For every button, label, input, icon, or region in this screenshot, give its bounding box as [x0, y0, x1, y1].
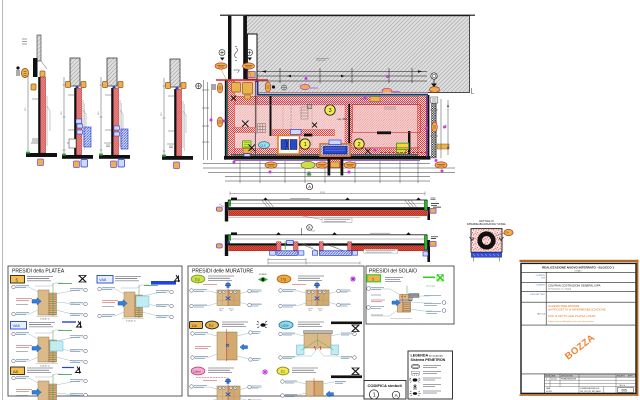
svg-text:LOSA 1: LOSA 1	[575, 270, 583, 273]
svg-text:TLR: TLR	[541, 277, 546, 279]
svg-text:11g: 11g	[195, 277, 200, 281]
svg-text:APPR: APPR	[628, 375, 633, 378]
svg-text:DESCRIZIONE: DESCRIZIONE	[561, 376, 573, 378]
svg-text:mq 459.70: mq 459.70	[337, 117, 352, 121]
svg-text:PRESIDI della PLATEA: PRESIDI della PLATEA	[12, 269, 65, 275]
svg-text:05.2021: 05.2021	[551, 379, 557, 381]
svg-text:IMPERMEABILIZZAZIONE TUNNEL: IMPERMEABILIZZAZIONE TUNNEL	[467, 223, 507, 226]
svg-text:FASI di GETTO della PLATEA e M: FASI di GETTO della PLATEA e MURI	[548, 314, 596, 318]
svg-text:del PROGETTO di IMPERMEABILIZZ: del PROGETTO di IMPERMEABILIZZAZIONE	[548, 308, 606, 312]
svg-text:U11b: U11b	[282, 323, 289, 327]
svg-text:17g: 17g	[281, 277, 287, 281]
svg-text:REDATTO: REDATTO	[617, 375, 626, 378]
svg-text:CODIFICA simboli: CODIFICA simboli	[368, 383, 402, 388]
svg-text:11b: 11b	[192, 324, 198, 328]
svg-text:11b(s): 11b(s)	[193, 369, 201, 373]
svg-text:VA8: VA8	[99, 277, 107, 282]
svg-text:TAVOLA: TAVOLA	[537, 313, 546, 316]
svg-text:05.2021: 05.2021	[546, 391, 552, 393]
svg-text:A8: A8	[13, 369, 19, 374]
svg-text:REALIZZAZIONE NUOVO INTERRATO: REALIZZAZIONE NUOVO INTERRATO - BLOCCO 1	[542, 265, 614, 269]
svg-text:PRIMA EMISSIONE: PRIMA EMISSIONE	[561, 378, 577, 381]
svg-text:Sistema PENETRON: Sistema PENETRON	[411, 358, 446, 362]
svg-text:VA8: VA8	[13, 323, 21, 328]
svg-text:3: 3	[329, 108, 332, 114]
svg-text:PRESIDI delle MURATURE: PRESIDI delle MURATURE	[192, 269, 254, 275]
svg-text:RIPRESA: RIPRESA	[259, 273, 267, 276]
svg-text:rete el.sald.: rete el.sald.	[426, 285, 436, 288]
svg-text:PROGETTISTI: PROGETTISTI	[530, 294, 545, 296]
svg-text:CBL_STR_PN_IMP_BAGN: CBL_STR_PN_IMP_BAGN	[580, 390, 601, 393]
svg-text:Via Nazionale, 12 - Napoli: Via Nazionale, 12 - Napoli	[548, 289, 572, 291]
svg-text:CLS: CLS	[261, 143, 266, 147]
svg-text:COMMESSA NOME FILE: COMMESSA NOME FILE	[580, 387, 600, 390]
svg-text:1: 1	[373, 393, 376, 399]
svg-text:1: 1	[304, 142, 307, 148]
svg-text:11j: 11j	[281, 369, 285, 373]
svg-text:COLFRAN COSTRUZIONI GENERALI S: COLFRAN COSTRUZIONI GENERALI SPA	[548, 283, 601, 287]
svg-text:0: 0	[546, 379, 547, 381]
svg-text:il getto in opera della platea: il getto in opera della platea e dei mur…	[548, 320, 594, 323]
svg-text:2125: 2125	[320, 192, 326, 194]
svg-text:A: A	[308, 184, 311, 189]
svg-text:CLIENTE: CLIENTE	[536, 284, 546, 286]
svg-text:005: 005	[622, 389, 628, 393]
svg-text:11c: 11c	[209, 323, 214, 327]
svg-text:PRESIDI del SOLAIO: PRESIDI del SOLAIO	[369, 269, 417, 275]
